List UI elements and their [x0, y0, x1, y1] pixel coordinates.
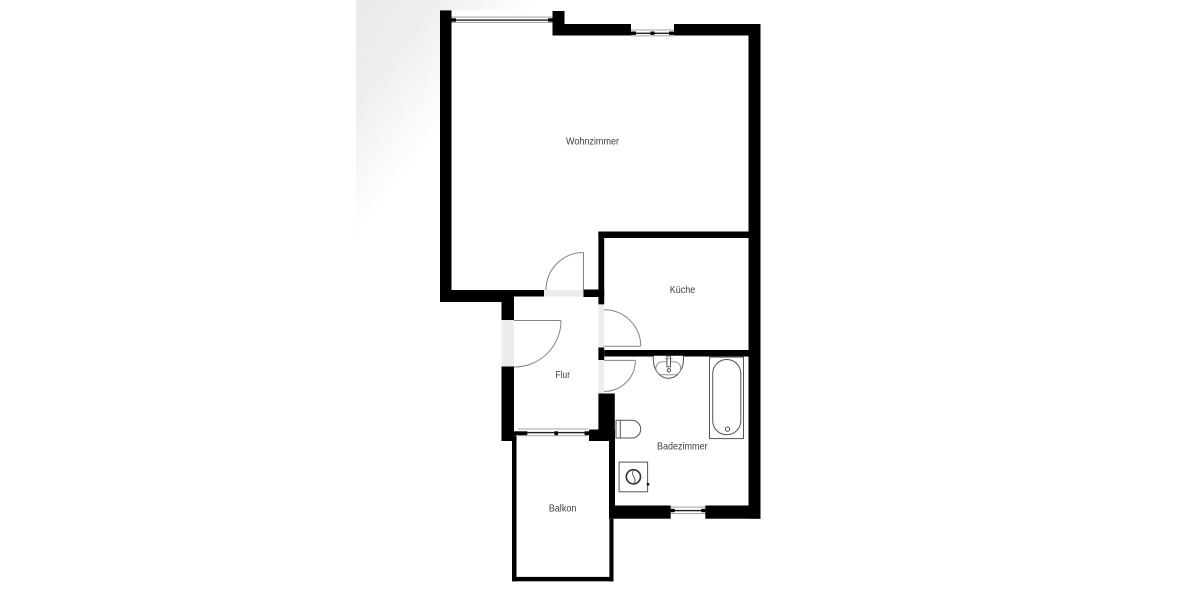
svg-text:Balkon: Balkon [549, 504, 577, 515]
svg-text:Badezimmer: Badezimmer [657, 442, 708, 453]
svg-text:Wohnzimmer: Wohnzimmer [566, 137, 620, 148]
svg-text:Flur: Flur [556, 370, 571, 381]
svg-text:Küche: Küche [670, 285, 696, 296]
